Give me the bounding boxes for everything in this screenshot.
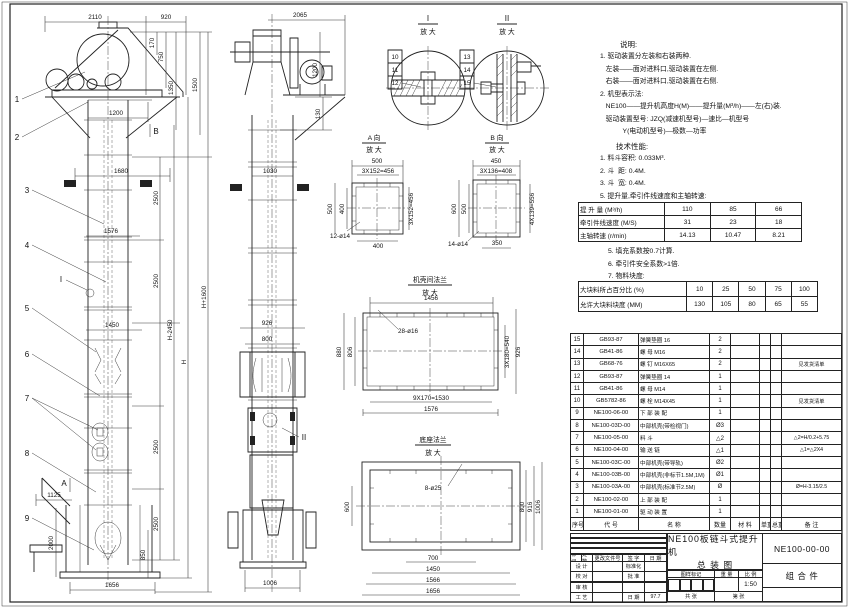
- view-a-flange: A 向 放 大 500 3X152=456 500 400 3X152=456 …: [327, 133, 415, 250]
- drawing-number: NE100-00-00: [762, 533, 842, 564]
- view-title: 底座法兰: [419, 435, 446, 444]
- bom-name: 弹簧垫圈 16: [639, 334, 710, 346]
- bom-total-weight: [771, 383, 782, 395]
- bom-qty: 2: [710, 346, 731, 358]
- bom-total-weight: [771, 432, 782, 444]
- dim-label: 1656: [426, 588, 441, 595]
- bom-material: [731, 334, 760, 346]
- bom-no: 2: [571, 493, 584, 505]
- dim-label: 700: [428, 555, 439, 562]
- bom-name: 料 斗: [639, 432, 710, 444]
- lump-size-table: 大块料所占百分比 (%) 10 25 50 75 100 允许大块料块度 (MM…: [578, 281, 818, 312]
- bom-no: 13: [571, 358, 584, 370]
- bom-remark: △1=△2X4: [782, 444, 842, 456]
- detail-title: II: [505, 14, 509, 23]
- bom-row: 1 NE100-01-00 驱 动 装 置 1: [571, 506, 842, 518]
- row-label: 牵引件线速度 (M/S): [579, 216, 665, 229]
- bom-qty: 2: [710, 358, 731, 370]
- tech-line: 3. 斗 宽: 0.4M.: [600, 178, 845, 191]
- drawing-title-line1: NE100板链斗式提升机: [668, 533, 762, 558]
- dim-label: 2500: [153, 440, 160, 455]
- balloon-number: 4: [25, 241, 30, 250]
- view-title: B 向: [490, 133, 503, 142]
- dim-label: 3X180=540: [504, 335, 511, 368]
- bom-material: [731, 370, 760, 382]
- bom-code: GB93-87: [584, 370, 639, 382]
- dim-label: 2065: [293, 12, 308, 19]
- bom-code: NE100-03B-00: [584, 469, 639, 481]
- bom-qty: 2: [710, 334, 731, 346]
- bom-qty: 1: [710, 395, 731, 407]
- weight-value: [714, 577, 739, 592]
- bom-material: [731, 456, 760, 468]
- bom-material: [731, 444, 760, 456]
- bom-unit-weight: [760, 395, 771, 407]
- dim-label: 600: [451, 203, 458, 214]
- bom-remark: [782, 469, 842, 481]
- bom-remark: [782, 420, 842, 432]
- dim-label: 1200: [312, 63, 319, 78]
- bom-name: 螺 钉 M16X65: [639, 358, 710, 370]
- note-line: 5. 填充系数按0.7计算.: [608, 246, 808, 259]
- detail-subtitle: 放 大: [499, 27, 515, 36]
- bom-code: NE100-05-00: [584, 432, 639, 444]
- bom-material: [731, 358, 760, 370]
- view-subtitle: 放 大: [366, 145, 382, 154]
- bom-name: 弹簧垫圈 14: [639, 370, 710, 382]
- dim-label: 1450: [105, 322, 120, 329]
- balloon-number: 7: [25, 394, 30, 403]
- cell: 23: [710, 216, 756, 229]
- dim-label: 2500: [153, 517, 160, 532]
- sheet-number: 第 张: [714, 591, 763, 602]
- bom-row: 14 GB41-86 螺 母 M16 2: [571, 346, 842, 358]
- bom-qty: Ø: [710, 481, 731, 493]
- bom-material: [731, 493, 760, 505]
- cell: 80: [739, 297, 765, 312]
- drawing-title: NE100板链斗式提升机 总 装 图: [667, 533, 763, 570]
- bom-material: [731, 407, 760, 419]
- bom-material: [731, 346, 760, 358]
- bom-material: [731, 432, 760, 444]
- casing-flange-view: 机壳间法兰 放 大 1456 28-ø16 880 806 3X180=540 …: [336, 275, 522, 416]
- bom-header: 数量: [710, 518, 731, 530]
- bom-no: 10: [571, 395, 584, 407]
- bom-remark: [782, 370, 842, 382]
- bom-total-weight: [771, 469, 782, 481]
- bom-row: 8 NE100-03D-00 中部机壳(带检视门) Ø3: [571, 420, 842, 432]
- dim-label: H-2450: [167, 319, 174, 340]
- bom-total-weight: [771, 493, 782, 505]
- bom-remark: [782, 506, 842, 518]
- dim-label: 2000: [48, 536, 55, 551]
- bom-row: 5 NE100-03C-00 中部机壳(带导轨) Ø2: [571, 456, 842, 468]
- bom-name: 螺 栓 M14X45: [639, 395, 710, 407]
- bom-row: 3 NE100-03A-00 中部机壳(标准节2.5M) Ø Ø=H-3.15/…: [571, 481, 842, 493]
- bom-name: 中部机壳(带导轨): [639, 456, 710, 468]
- table-row: 允许大块料块度 (MM) 130 105 80 65 55: [579, 297, 818, 312]
- signature-label: 工 艺: [570, 592, 593, 603]
- dim-label: H+1600: [201, 285, 208, 308]
- dim-label: 800: [519, 501, 526, 512]
- note-line: 右装——面对进料口,驱动装置在右侧.: [600, 76, 845, 89]
- performance-table: 提 升 量 (M³/h) 110 85 66 牵引件线速度 (M/S) 31 2…: [578, 202, 802, 242]
- bom-no: 6: [571, 444, 584, 456]
- bom-header: 单重: [760, 518, 771, 530]
- balloon-number: 13: [463, 54, 471, 61]
- cell: 75: [765, 282, 791, 297]
- bom-remark: △2=H/0.2+5.75: [782, 432, 842, 444]
- bom-code: NE100-06-00: [584, 407, 639, 419]
- dim-label: 1456: [424, 295, 439, 302]
- bom-material: [731, 506, 760, 518]
- bom-unit-weight: [760, 481, 771, 493]
- bom-code: NE100-03C-00: [584, 456, 639, 468]
- dim-label: 916: [527, 501, 534, 512]
- bom-total-weight: [771, 358, 782, 370]
- dim-label: 2110: [88, 14, 102, 21]
- view-subtitle: 放 大: [489, 145, 505, 154]
- note-line: 驱动装置型号: JZQ(减速机型号)—速比—机型号: [600, 114, 845, 127]
- bom-total-weight: [771, 444, 782, 456]
- bom-unit-weight: [760, 432, 771, 444]
- notes-heading: 说明:: [620, 39, 637, 50]
- dim-label: 600: [344, 501, 351, 512]
- bom-remark: 见发货清单: [782, 395, 842, 407]
- note-line: 6. 牵引件安全系数>1倍.: [608, 259, 808, 272]
- view-b-flange: B 向 放 大 450 3X136=408 600 500 4X139=556 …: [448, 133, 536, 248]
- sheet-count: 共 张: [667, 591, 715, 602]
- bom-no: 12: [571, 370, 584, 382]
- bom-name: 中部机壳(非标节1.5M,1M): [639, 469, 710, 481]
- bom-row: 12 GB93-87 弹簧垫圈 14 1: [571, 370, 842, 382]
- bom-header: 备 注: [782, 518, 842, 530]
- bom-unit-weight: [760, 506, 771, 518]
- bom-no: 4: [571, 469, 584, 481]
- bom-name: 螺 母 M16: [639, 346, 710, 358]
- signature-value: 97.7: [644, 592, 667, 603]
- table-row: 提 升 量 (M³/h) 110 85 66: [579, 203, 802, 216]
- note-line: Y(电动机型号)—极数—功率: [600, 126, 845, 139]
- dim-label: 3X136=408: [480, 168, 513, 175]
- balloon-number: 2: [15, 133, 20, 142]
- bom-qty: △1: [710, 444, 731, 456]
- cell: 85: [710, 203, 756, 216]
- detail-subtitle: 放 大: [420, 27, 436, 36]
- bom-total-weight: [771, 370, 782, 382]
- bom-no: 9: [571, 407, 584, 419]
- dim-label: 450: [491, 158, 502, 165]
- bom-qty: 1: [710, 493, 731, 505]
- row-label: 大块料所占百分比 (%): [579, 282, 687, 297]
- view-title: A 向: [368, 133, 381, 142]
- bom-qty: 1: [710, 506, 731, 518]
- bom-code: NE100-01-00: [584, 506, 639, 518]
- bom-unit-weight: [760, 444, 771, 456]
- dim-label: 926: [262, 320, 273, 327]
- cell: 25: [713, 282, 739, 297]
- dim-label: 750: [158, 51, 165, 62]
- dim-label: 350: [492, 240, 503, 247]
- cell: 105: [713, 297, 739, 312]
- dim-label: 4X139=556: [529, 192, 536, 225]
- detail-title: I: [427, 14, 429, 23]
- bom-material: [731, 481, 760, 493]
- bom-qty: △2: [710, 432, 731, 444]
- bom-qty: Ø3: [710, 420, 731, 432]
- note-line: 左装——面对进料口,驱动装置在左侧.: [600, 64, 845, 77]
- dim-label: 1656: [105, 582, 120, 589]
- bom-header: 材 料: [731, 518, 760, 530]
- note-line: NE100——提升机高度H(M)——提升量(M³/h)——左(右)装.: [600, 101, 845, 114]
- base-flange-view: 底座法兰 放 大 8-ø25 600 800 916 1006 700 1450…: [344, 435, 542, 595]
- bom-header: 名 称: [639, 518, 710, 530]
- dim-label: 1576: [104, 228, 119, 235]
- cell: 14.13: [665, 229, 711, 242]
- dim-label: 1576: [424, 406, 439, 413]
- dim-label: 1125: [47, 492, 61, 499]
- signature-value: [592, 592, 623, 603]
- bom-material: [731, 420, 760, 432]
- bom-name: 下 部 装 配: [639, 407, 710, 419]
- bom-remark: [782, 334, 842, 346]
- dim-label: 1450: [426, 566, 441, 573]
- bom-header-row: 序号 代 号 名 称 数量 材 料 单重 总重 备 注: [571, 518, 842, 530]
- bom-header: 序号: [571, 518, 584, 530]
- hole-callout: 8-ø25: [425, 485, 442, 492]
- bom-no: 7: [571, 432, 584, 444]
- dim-label: 1030: [263, 168, 278, 175]
- hole-callout: 28-ø16: [398, 328, 418, 335]
- bom-total-weight: [771, 334, 782, 346]
- balloon-number: 1: [15, 95, 20, 104]
- balloon-number: 15: [463, 80, 471, 87]
- bom-no: 15: [571, 334, 584, 346]
- dim-label: H: [181, 359, 188, 364]
- table-row: 牵引件线速度 (M/S) 31 23 18: [579, 216, 802, 229]
- cell: 110: [665, 203, 711, 216]
- table-row: 大块料所占百分比 (%) 10 25 50 75 100: [579, 282, 818, 297]
- bom-total-weight: [771, 346, 782, 358]
- bom-no: 1: [571, 506, 584, 518]
- bom-qty: Ø1: [710, 469, 731, 481]
- parts-list: 15 GB93-87 弹簧垫圈 16 2 14 GB41-86 螺 母 M16 …: [570, 333, 842, 531]
- engineering-drawing-sheet: I 2110 920 170 750 1350 1500 1200 B 1680…: [0, 0, 850, 609]
- view-subtitle: 放 大: [425, 448, 441, 457]
- drawing-title-line2: 总 装 图: [697, 558, 733, 570]
- dim-label: 2500: [153, 274, 160, 289]
- section-marker-i: I: [60, 275, 62, 284]
- blank-cell: [762, 587, 842, 602]
- dim-label: 2500: [153, 191, 160, 206]
- bom-remark: [782, 456, 842, 468]
- bom-header: 总重: [771, 518, 782, 530]
- section-marker-ii: II: [302, 433, 306, 442]
- balloon-number: 11: [392, 67, 399, 74]
- balloon-number: 12: [391, 80, 399, 87]
- bom-code: NE100-03A-00: [584, 481, 639, 493]
- bom-name: 驱 动 装 置: [639, 506, 710, 518]
- bom-total-weight: [771, 456, 782, 468]
- bom-code: GB41-86: [584, 346, 639, 358]
- bom-name: 螺 母 M14: [639, 383, 710, 395]
- bom-material: [731, 383, 760, 395]
- note-line: 1. 驱动装置分左装和右装两种.: [600, 51, 845, 64]
- scale-value: 1:50: [738, 577, 763, 592]
- bom-row: 13 GB68-76 螺 钉 M16X65 2 见发货清单: [571, 358, 842, 370]
- dim-label: 130: [315, 108, 322, 119]
- cell: 100: [791, 282, 817, 297]
- bom-no: 3: [571, 481, 584, 493]
- bom-unit-weight: [760, 469, 771, 481]
- cell: 55: [791, 297, 817, 312]
- note-line: 2. 机型表示法:: [600, 89, 845, 102]
- dim-label: 926: [515, 346, 522, 357]
- bom-unit-weight: [760, 456, 771, 468]
- front-elevation-view: I 2110 920 170 750 1350 1500 1200 B 1680…: [15, 14, 212, 594]
- dim-label: 400: [339, 203, 346, 214]
- bom-remark: [782, 383, 842, 395]
- bom-code: GB5782-86: [584, 395, 639, 407]
- bom-row: 9 NE100-06-00 下 部 装 配 1: [571, 407, 842, 419]
- dim-label: 1350: [168, 81, 175, 96]
- view-marker-a: A: [61, 479, 67, 488]
- bom-qty: Ø2: [710, 456, 731, 468]
- stamp-boxes: [667, 577, 715, 592]
- cell: 18: [756, 216, 802, 229]
- dim-label: 500: [372, 158, 383, 165]
- balloon-number: 10: [391, 54, 399, 61]
- detail-i: I 放 大 10 11 12: [386, 14, 470, 130]
- bom-header: 代 号: [584, 518, 639, 530]
- detail-ii: II 放 大 13 14 15: [460, 14, 549, 130]
- bom-total-weight: [771, 420, 782, 432]
- bom-code: GB93-87: [584, 334, 639, 346]
- tech-block: 1. 料斗容积: 0.033M³.2. 斗 距: 0.4M.3. 斗 宽: 0.…: [600, 153, 845, 203]
- bom-name: 中部机壳(标准节2.5M): [639, 481, 710, 493]
- dim-label: 3X152=456: [408, 192, 415, 225]
- balloon-number: 9: [25, 514, 30, 523]
- tech-line: 2. 斗 距: 0.4M.: [600, 166, 845, 179]
- notes2-block: 5. 填充系数按0.7计算.6. 牵引件安全系数>1倍.7. 物料块度:: [608, 246, 808, 284]
- bom-row: 15 GB93-87 弹簧垫圈 16 2: [571, 334, 842, 346]
- bom-no: 14: [571, 346, 584, 358]
- hole-callout: 12-ø14: [330, 233, 350, 240]
- dim-label: 880: [336, 346, 343, 357]
- bom-name: 上 部 装 配: [639, 493, 710, 505]
- cell: 65: [765, 297, 791, 312]
- dim-label: 1006: [535, 500, 542, 515]
- bom-qty: 1: [710, 383, 731, 395]
- bom-code: NE100-03D-00: [584, 420, 639, 432]
- cell: 10.47: [710, 229, 756, 242]
- cell: 31: [665, 216, 711, 229]
- bom-code: GB41-86: [584, 383, 639, 395]
- tech-heading: 技术性能:: [616, 141, 648, 152]
- view-marker-b: B: [153, 127, 158, 136]
- bom-no: 8: [571, 420, 584, 432]
- signature-label: 日 期: [622, 592, 645, 603]
- bom-material: [731, 469, 760, 481]
- side-elevation-view: II 2065 1200 130 1030 926 800 1006: [228, 12, 345, 592]
- bom-unit-weight: [760, 383, 771, 395]
- dim-label: 3X152=456: [362, 168, 395, 175]
- notes-block: 1. 驱动装置分左装和右装两种. 左装——面对进料口,驱动装置在左侧. 右装——…: [600, 51, 845, 139]
- bom-unit-weight: [760, 346, 771, 358]
- dim-label: 400: [373, 243, 384, 250]
- bom-total-weight: [771, 395, 782, 407]
- bom-total-weight: [771, 407, 782, 419]
- row-label: 允许大块料块度 (MM): [579, 297, 687, 312]
- dim-label: 500: [327, 203, 334, 214]
- dim-label: 806: [347, 346, 354, 357]
- bom-total-weight: [771, 506, 782, 518]
- dim-label: 500: [461, 203, 468, 214]
- balloon-number: 8: [25, 449, 30, 458]
- bom-row: 6 NE100-04-00 输 送 链 △1 △1=△2X4: [571, 444, 842, 456]
- row-label: 主轴转速 (r/min): [579, 229, 665, 242]
- bom-row: 4 NE100-03B-00 中部机壳(非标节1.5M,1M) Ø1: [571, 469, 842, 481]
- dim-label: 920: [161, 14, 172, 21]
- bom-code: GB68-76: [584, 358, 639, 370]
- bom-code: NE100-02-00: [584, 493, 639, 505]
- table-row: 主轴转速 (r/min) 14.13 10.47 8.21: [579, 229, 802, 242]
- dim-label: 1200: [109, 110, 124, 117]
- balloon-number: 5: [25, 304, 30, 313]
- dim-label: 800: [262, 336, 273, 343]
- dim-label: 1006: [263, 580, 278, 587]
- bom-unit-weight: [760, 493, 771, 505]
- bom-row: 10 GB5782-86 螺 栓 M14X45 1 见发货清单: [571, 395, 842, 407]
- bom-no: 11: [571, 383, 584, 395]
- cell: 66: [756, 203, 802, 216]
- dim-label: 1566: [426, 577, 441, 584]
- balloon-number: 3: [25, 186, 30, 195]
- bom-remark: [782, 407, 842, 419]
- cell: 50: [739, 282, 765, 297]
- bom-unit-weight: [760, 334, 771, 346]
- dim-label: 1500: [192, 78, 199, 93]
- bom-unit-weight: [760, 358, 771, 370]
- cell: 10: [687, 282, 713, 297]
- hole-callout: 14-ø14: [448, 241, 468, 248]
- bom-material: [731, 395, 760, 407]
- bom-name: 输 送 链: [639, 444, 710, 456]
- bom-name: 中部机壳(带检视门): [639, 420, 710, 432]
- dim-label: 9X170=1530: [413, 395, 449, 402]
- bom-row: 7 NE100-05-00 料 斗 △2 △2=H/0.2+5.75: [571, 432, 842, 444]
- bom-no: 5: [571, 456, 584, 468]
- balloon-number: 14: [463, 67, 471, 74]
- bom-unit-weight: [760, 420, 771, 432]
- view-title: 机壳间法兰: [413, 275, 447, 284]
- dim-label: 1680: [114, 168, 129, 175]
- bom-total-weight: [771, 481, 782, 493]
- balloon-number: 6: [25, 350, 30, 359]
- row-label: 提 升 量 (M³/h): [579, 203, 665, 216]
- cell: 8.21: [756, 229, 802, 242]
- bom-remark: [782, 346, 842, 358]
- title-block: 标记 处数 更改文件号 签 字 日 期 设 计 标准化 校 对 批 准 审 核 …: [570, 533, 842, 602]
- tech-line: 1. 料斗容积: 0.033M³.: [600, 153, 845, 166]
- bom-remark: [782, 493, 842, 505]
- bom-unit-weight: [760, 370, 771, 382]
- bom-unit-weight: [760, 407, 771, 419]
- bom-remark: Ø=H-3.15/2.5: [782, 481, 842, 493]
- dim-label: 850: [140, 549, 147, 560]
- cell: 130: [687, 297, 713, 312]
- part-type: 组 合 件: [762, 563, 842, 588]
